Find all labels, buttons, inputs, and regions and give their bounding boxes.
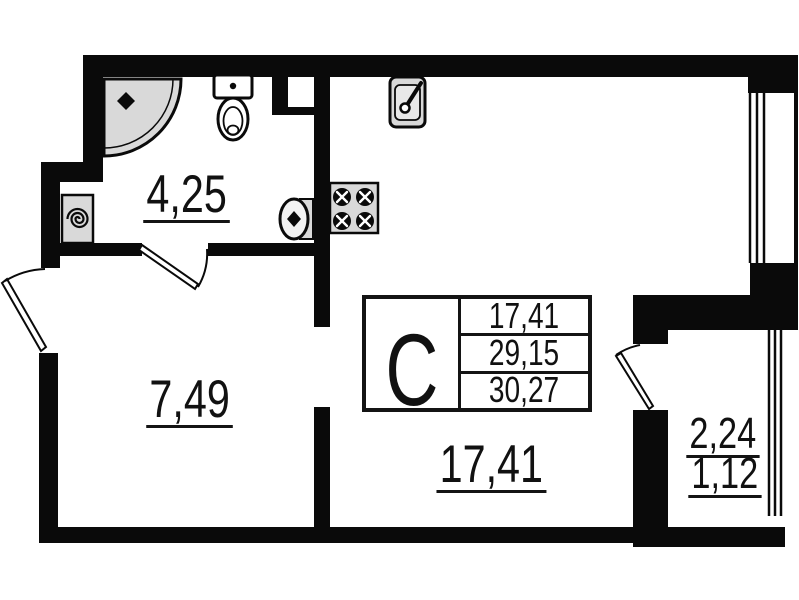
floor-plan: 4,25 7,49 17,41 2,24 1,12 С 17,41 29,15 … xyxy=(0,0,799,600)
main-room-area-label: 17,41 xyxy=(421,434,562,495)
unit-living-area-value: 17,41 xyxy=(489,302,559,331)
wall-bottom-main xyxy=(39,527,635,543)
main-room-area-value: 17,41 xyxy=(436,444,546,493)
unit-total-area-value: 30,27 xyxy=(489,376,559,405)
unit-total-area-cell: 30,27 xyxy=(461,374,588,408)
unit-type-cell: С xyxy=(366,299,461,408)
balcony-reduced-area-value: 1,12 xyxy=(688,456,761,498)
unit-living-area-cell: 17,41 xyxy=(461,299,588,336)
wall-bottom-balcony xyxy=(633,527,785,547)
wall-corner-top-right xyxy=(748,55,798,93)
hall-area-value: 7,49 xyxy=(146,379,233,428)
bathroom-sink-icon xyxy=(280,199,313,239)
hall-area-label: 7,49 xyxy=(134,369,245,430)
wall-balcony-lower xyxy=(633,410,668,528)
unit-info-table: С 17,41 29,15 30,27 xyxy=(362,295,592,412)
entrance-door-icon xyxy=(2,269,46,351)
wall-divider-upper xyxy=(314,75,330,327)
unit-area-value: 29,15 xyxy=(489,339,559,368)
balcony-reduced-area-label: 1,12 xyxy=(678,449,772,499)
wall-right-bar xyxy=(633,295,798,330)
wall-left-upper xyxy=(83,55,103,165)
wall-right-block xyxy=(750,263,798,297)
wall-left-mid xyxy=(41,182,60,268)
wall-balcony-stub xyxy=(633,330,668,344)
toilet-icon xyxy=(214,75,252,140)
wall-right-outer xyxy=(794,93,798,263)
wall-bath-bottom-left xyxy=(58,243,142,256)
bathroom-area-value: 4,25 xyxy=(143,174,230,223)
wall-left-lower xyxy=(39,353,58,543)
wall-divider-lower xyxy=(314,407,330,529)
wall-top xyxy=(83,55,756,77)
bathroom-door-icon xyxy=(139,245,207,289)
wall-bath-bottom-right xyxy=(208,243,330,256)
balcony-door-icon xyxy=(616,345,653,409)
shower-icon xyxy=(104,79,181,156)
stove-icon xyxy=(330,183,378,233)
bathroom-area-label: 4,25 xyxy=(131,164,242,225)
kitchen-sink-icon xyxy=(390,77,425,127)
unit-type-letter: С xyxy=(385,333,438,408)
unit-areas-column: 17,41 29,15 30,27 xyxy=(461,299,588,408)
wall-niche-bottom xyxy=(272,107,314,115)
wall-left-step xyxy=(41,162,103,182)
washing-machine-icon xyxy=(62,195,93,243)
window-main-icon xyxy=(750,93,764,263)
unit-area-cell: 29,15 xyxy=(461,336,588,373)
